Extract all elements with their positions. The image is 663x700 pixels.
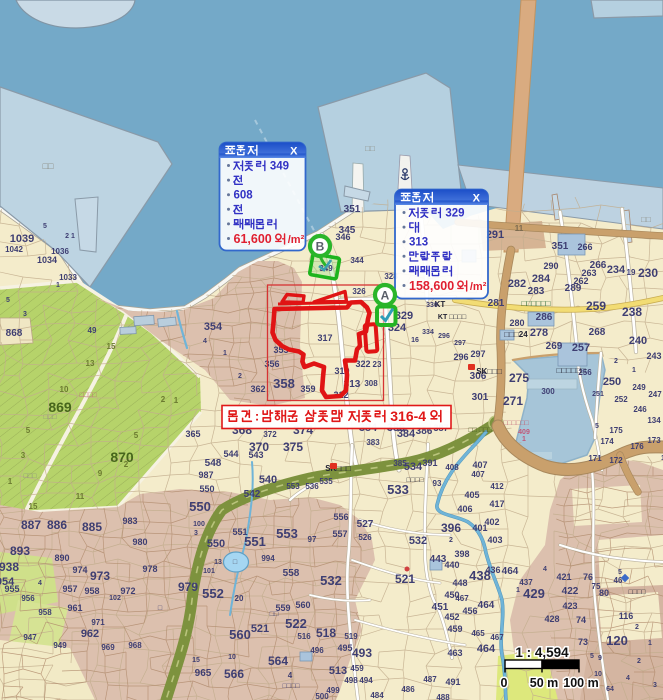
svg-text:2 1: 2 1 bbox=[65, 233, 75, 240]
svg-text:257: 257 bbox=[572, 342, 590, 354]
svg-text:566: 566 bbox=[224, 667, 244, 681]
svg-text:□□□: □□□ bbox=[24, 473, 37, 480]
svg-text:448: 448 bbox=[452, 578, 467, 588]
svg-text:297: 297 bbox=[470, 349, 485, 359]
svg-text:266: 266 bbox=[590, 260, 607, 271]
svg-text:281: 281 bbox=[488, 298, 505, 309]
svg-text:5: 5 bbox=[595, 423, 599, 430]
svg-text:230: 230 bbox=[638, 266, 658, 280]
svg-text:464: 464 bbox=[478, 600, 495, 611]
svg-text:351: 351 bbox=[344, 204, 361, 215]
svg-text:463: 463 bbox=[447, 648, 462, 658]
svg-text:A: A bbox=[381, 289, 390, 303]
svg-text:116: 116 bbox=[619, 611, 634, 621]
svg-text:396: 396 bbox=[441, 521, 461, 535]
svg-text:2: 2 bbox=[124, 460, 129, 469]
svg-text:440: 440 bbox=[444, 560, 459, 570]
svg-text:359: 359 bbox=[300, 384, 315, 394]
svg-text:102: 102 bbox=[109, 595, 121, 602]
svg-text:334: 334 bbox=[422, 329, 434, 336]
svg-text:2: 2 bbox=[238, 373, 242, 380]
svg-text:550: 550 bbox=[199, 484, 214, 494]
svg-text:938: 938 bbox=[0, 560, 19, 574]
svg-text::: : bbox=[255, 409, 259, 424]
svg-text:534: 534 bbox=[404, 461, 423, 473]
svg-text:134: 134 bbox=[647, 416, 661, 425]
svg-text:252: 252 bbox=[614, 395, 628, 404]
svg-text:351: 351 bbox=[552, 241, 569, 252]
svg-text:550: 550 bbox=[207, 538, 225, 550]
svg-text:246: 246 bbox=[633, 405, 647, 414]
svg-text:249: 249 bbox=[632, 383, 646, 392]
svg-text:243: 243 bbox=[646, 351, 661, 361]
svg-text:□□: □□ bbox=[43, 161, 54, 171]
svg-text:349: 349 bbox=[270, 161, 289, 173]
svg-text:286: 286 bbox=[536, 312, 553, 323]
svg-text:301: 301 bbox=[472, 392, 489, 403]
svg-text:487: 487 bbox=[423, 675, 437, 684]
svg-text:467: 467 bbox=[490, 633, 504, 642]
svg-text:558: 558 bbox=[283, 568, 300, 579]
svg-text:551: 551 bbox=[244, 534, 266, 549]
svg-text:540: 540 bbox=[259, 474, 277, 486]
svg-text:358: 358 bbox=[273, 376, 295, 391]
svg-text:544: 544 bbox=[223, 449, 238, 459]
svg-text:1039: 1039 bbox=[10, 233, 34, 245]
svg-text:532: 532 bbox=[409, 535, 427, 547]
svg-text:100: 100 bbox=[193, 521, 205, 528]
svg-text:947: 947 bbox=[23, 633, 37, 642]
svg-text:□□: □□ bbox=[270, 611, 279, 618]
svg-text:968: 968 bbox=[128, 641, 142, 650]
svg-text:495: 495 bbox=[337, 643, 352, 653]
svg-text:429: 429 bbox=[523, 586, 545, 601]
svg-text:496: 496 bbox=[310, 646, 324, 655]
svg-text:972: 972 bbox=[120, 586, 135, 596]
svg-text:1: 1 bbox=[648, 640, 652, 647]
svg-text:1: 1 bbox=[223, 350, 227, 357]
svg-text:437: 437 bbox=[519, 578, 533, 587]
svg-text:173: 173 bbox=[647, 436, 661, 445]
svg-text:974: 974 bbox=[72, 565, 87, 575]
svg-text:176: 176 bbox=[630, 442, 644, 451]
svg-text:521: 521 bbox=[251, 623, 269, 635]
svg-text:329: 329 bbox=[395, 310, 413, 322]
svg-text:15: 15 bbox=[107, 342, 116, 351]
svg-text:553: 553 bbox=[276, 526, 298, 541]
svg-text:403: 403 bbox=[487, 535, 502, 545]
svg-text:969: 969 bbox=[101, 643, 115, 652]
svg-text:120: 120 bbox=[606, 633, 628, 648]
svg-text:407: 407 bbox=[472, 460, 487, 470]
svg-text:533: 533 bbox=[387, 482, 409, 497]
svg-text:13: 13 bbox=[86, 359, 95, 368]
svg-text:464: 464 bbox=[502, 566, 519, 577]
svg-text:□□□□□□: □□□□□□ bbox=[503, 420, 529, 427]
svg-text:978: 978 bbox=[142, 564, 157, 574]
svg-text:356: 356 bbox=[264, 359, 279, 369]
svg-text:329: 329 bbox=[445, 208, 464, 220]
svg-text:521: 521 bbox=[395, 572, 415, 586]
svg-text:280: 280 bbox=[509, 318, 524, 328]
svg-text:965: 965 bbox=[195, 668, 212, 679]
svg-text:158,600: 158,600 bbox=[409, 279, 454, 293]
svg-text:4: 4 bbox=[543, 566, 547, 573]
svg-text:250: 250 bbox=[603, 376, 621, 388]
svg-text:465: 465 bbox=[471, 629, 485, 638]
svg-text:971: 971 bbox=[91, 618, 105, 627]
svg-text:459: 459 bbox=[350, 664, 364, 673]
svg-text:259: 259 bbox=[586, 299, 606, 313]
svg-text:3: 3 bbox=[23, 311, 27, 318]
svg-text:4: 4 bbox=[626, 675, 630, 682]
svg-text:300: 300 bbox=[541, 387, 555, 396]
svg-text:322: 322 bbox=[355, 359, 370, 369]
svg-text:330: 330 bbox=[426, 302, 438, 309]
svg-text:□□ □□□: □□ □□□ bbox=[468, 427, 492, 434]
svg-text:370: 370 bbox=[249, 440, 269, 454]
svg-text:405: 405 bbox=[464, 490, 479, 500]
svg-text:983: 983 bbox=[122, 516, 137, 526]
svg-text:870: 870 bbox=[110, 449, 134, 465]
svg-text:9: 9 bbox=[598, 655, 602, 662]
svg-text:KT □□□□: KT □□□□ bbox=[438, 314, 467, 321]
svg-text:553: 553 bbox=[286, 482, 300, 491]
svg-text:973: 973 bbox=[90, 569, 110, 583]
svg-text:354: 354 bbox=[204, 321, 223, 333]
svg-text:□□□□□□: □□□□□□ bbox=[522, 299, 551, 308]
svg-text:61,600: 61,600 bbox=[234, 232, 272, 246]
svg-text:456: 456 bbox=[462, 606, 477, 616]
svg-text:50 m: 50 m bbox=[530, 676, 559, 690]
svg-text:234: 234 bbox=[607, 264, 626, 276]
svg-text:890: 890 bbox=[54, 553, 69, 563]
svg-text:526: 526 bbox=[358, 533, 372, 542]
svg-text:987: 987 bbox=[198, 470, 213, 480]
svg-text:5: 5 bbox=[26, 426, 31, 435]
svg-text:417: 417 bbox=[489, 499, 504, 509]
svg-text:548: 548 bbox=[205, 458, 222, 469]
svg-text:73: 73 bbox=[578, 637, 588, 647]
svg-text:80: 80 bbox=[599, 588, 609, 598]
svg-text:869: 869 bbox=[48, 399, 72, 415]
svg-text:247: 247 bbox=[648, 390, 662, 399]
svg-text:979: 979 bbox=[178, 580, 198, 594]
svg-text:□□: □□ bbox=[365, 144, 375, 153]
svg-text:527: 527 bbox=[357, 519, 374, 530]
svg-text:887: 887 bbox=[21, 518, 41, 532]
svg-text:344: 344 bbox=[350, 256, 364, 265]
svg-text:958: 958 bbox=[84, 586, 99, 596]
svg-text:□□□□□□: □□□□□□ bbox=[557, 366, 586, 375]
svg-text:100 m: 100 m bbox=[563, 676, 598, 690]
svg-text:2: 2 bbox=[614, 358, 618, 365]
svg-text:423: 423 bbox=[562, 601, 577, 611]
svg-text:498: 498 bbox=[344, 676, 358, 685]
svg-text:X: X bbox=[290, 146, 298, 158]
svg-text:893: 893 bbox=[10, 544, 30, 558]
svg-text:564: 564 bbox=[268, 654, 288, 668]
svg-text:275: 275 bbox=[509, 371, 529, 385]
svg-text:11: 11 bbox=[76, 492, 85, 501]
svg-text:536: 536 bbox=[305, 482, 319, 491]
svg-text:949: 949 bbox=[53, 641, 67, 650]
svg-text:484: 484 bbox=[370, 691, 384, 700]
svg-text:958: 958 bbox=[38, 608, 52, 617]
svg-text:SK□□□: SK□□□ bbox=[476, 367, 502, 376]
svg-text:171: 171 bbox=[588, 454, 602, 463]
svg-text:1: 1 bbox=[632, 367, 636, 374]
svg-text:436: 436 bbox=[485, 565, 500, 575]
svg-text:407: 407 bbox=[471, 470, 485, 479]
svg-text:428: 428 bbox=[544, 614, 559, 624]
svg-text:/m²: /m² bbox=[288, 234, 305, 246]
svg-text:535: 535 bbox=[319, 477, 333, 486]
svg-text:398: 398 bbox=[454, 549, 469, 559]
svg-text:11: 11 bbox=[515, 224, 524, 233]
svg-text:296: 296 bbox=[453, 352, 468, 362]
svg-text:522: 522 bbox=[285, 616, 307, 631]
svg-text:76: 76 bbox=[583, 572, 593, 582]
svg-text:266: 266 bbox=[577, 242, 592, 252]
svg-text:516: 516 bbox=[297, 632, 311, 641]
svg-text:384: 384 bbox=[397, 428, 416, 440]
svg-text:1: 1 bbox=[56, 282, 60, 289]
svg-text:251: 251 bbox=[592, 391, 604, 398]
svg-text:3: 3 bbox=[194, 530, 198, 537]
svg-text:3: 3 bbox=[653, 682, 657, 689]
svg-text:372: 372 bbox=[263, 430, 277, 439]
svg-text:4: 4 bbox=[288, 671, 293, 680]
svg-text:608: 608 bbox=[234, 190, 254, 202]
svg-text:500: 500 bbox=[315, 692, 329, 700]
svg-text:1: 1 bbox=[516, 587, 520, 594]
svg-text:75: 75 bbox=[592, 582, 601, 591]
svg-text:X: X bbox=[473, 193, 481, 205]
svg-text:B: B bbox=[316, 240, 325, 254]
svg-text:49: 49 bbox=[88, 326, 97, 335]
svg-text:278: 278 bbox=[530, 327, 548, 339]
svg-text:488: 488 bbox=[436, 693, 450, 700]
svg-text:980: 980 bbox=[132, 537, 147, 547]
svg-text:271: 271 bbox=[503, 394, 523, 408]
svg-text:532: 532 bbox=[320, 573, 342, 588]
svg-text:961: 961 bbox=[67, 603, 82, 613]
svg-text:956: 956 bbox=[21, 594, 35, 603]
svg-text:4: 4 bbox=[203, 338, 207, 345]
svg-text:240: 240 bbox=[629, 335, 647, 347]
svg-text:4: 4 bbox=[38, 580, 42, 587]
svg-text:493: 493 bbox=[352, 646, 372, 660]
svg-text:5: 5 bbox=[590, 653, 594, 660]
svg-text:290: 290 bbox=[543, 261, 558, 271]
svg-text:93: 93 bbox=[433, 479, 442, 488]
svg-text:994: 994 bbox=[261, 554, 275, 563]
svg-text:5: 5 bbox=[6, 297, 10, 304]
svg-text:962: 962 bbox=[81, 628, 99, 640]
svg-text:□□□□: □□□□ bbox=[629, 589, 647, 596]
svg-text:885: 885 bbox=[82, 520, 102, 534]
svg-text:868: 868 bbox=[6, 328, 23, 339]
svg-text:317: 317 bbox=[317, 333, 332, 343]
svg-text:1033: 1033 bbox=[59, 273, 77, 282]
svg-text:408: 408 bbox=[445, 463, 459, 472]
svg-text:9: 9 bbox=[98, 469, 103, 478]
svg-text:459: 459 bbox=[447, 624, 462, 634]
svg-text:15: 15 bbox=[192, 657, 200, 664]
svg-text:316-4: 316-4 bbox=[390, 408, 426, 424]
svg-text:5: 5 bbox=[618, 569, 622, 576]
svg-text:957: 957 bbox=[62, 584, 77, 594]
svg-text:518: 518 bbox=[316, 626, 336, 640]
svg-text:15: 15 bbox=[29, 502, 38, 511]
svg-text:2: 2 bbox=[161, 395, 166, 404]
svg-text:174: 174 bbox=[600, 437, 614, 446]
svg-text:375: 375 bbox=[283, 440, 303, 454]
svg-text:284: 284 bbox=[532, 273, 551, 285]
svg-text:494: 494 bbox=[359, 676, 373, 685]
svg-text:13: 13 bbox=[214, 559, 222, 566]
svg-text:1034: 1034 bbox=[37, 255, 57, 265]
svg-text:172: 172 bbox=[609, 456, 623, 465]
svg-text:19: 19 bbox=[627, 268, 636, 277]
svg-text:2: 2 bbox=[637, 658, 641, 665]
svg-text:560: 560 bbox=[295, 600, 310, 610]
svg-text:SK□□□: SK□□□ bbox=[325, 464, 351, 473]
svg-text:1: 1 bbox=[8, 477, 13, 486]
svg-text:10: 10 bbox=[228, 654, 236, 661]
svg-text:452: 452 bbox=[444, 612, 459, 622]
svg-text:557: 557 bbox=[332, 529, 347, 539]
svg-text:16: 16 bbox=[411, 337, 419, 344]
svg-text:/m²: /m² bbox=[470, 281, 487, 293]
svg-text:64: 64 bbox=[606, 686, 614, 693]
svg-text:552: 552 bbox=[202, 586, 224, 601]
svg-text:1: 1 bbox=[174, 396, 179, 405]
svg-text:954: 954 bbox=[0, 576, 15, 588]
svg-text:362: 362 bbox=[250, 384, 265, 394]
svg-text:556: 556 bbox=[333, 512, 348, 522]
svg-text:□□□□: □□□□ bbox=[283, 683, 301, 690]
svg-text:282: 282 bbox=[508, 278, 526, 290]
svg-text:409: 409 bbox=[518, 429, 530, 436]
svg-text:268: 268 bbox=[589, 327, 606, 338]
svg-text:175: 175 bbox=[609, 426, 623, 435]
svg-text:1 : 4,594: 1 : 4,594 bbox=[515, 645, 569, 660]
svg-text:886: 886 bbox=[47, 518, 67, 532]
svg-text:2: 2 bbox=[449, 537, 453, 544]
svg-text:346: 346 bbox=[335, 232, 350, 242]
svg-text:97: 97 bbox=[308, 535, 317, 544]
svg-text:238: 238 bbox=[622, 305, 642, 319]
svg-text:365: 365 bbox=[185, 429, 200, 439]
svg-text:1: 1 bbox=[522, 436, 526, 443]
svg-text:464: 464 bbox=[477, 643, 496, 655]
svg-text:313: 313 bbox=[409, 237, 428, 249]
svg-text:296: 296 bbox=[438, 333, 450, 340]
svg-text:□□□24: □□□24 bbox=[504, 330, 528, 339]
svg-text:□□: □□ bbox=[641, 215, 651, 224]
svg-text:□□□: □□□ bbox=[44, 414, 57, 421]
svg-text:491: 491 bbox=[445, 677, 460, 687]
svg-text:10: 10 bbox=[60, 385, 69, 394]
svg-text:402: 402 bbox=[484, 517, 499, 527]
svg-text:542: 542 bbox=[244, 489, 261, 500]
svg-text:1042: 1042 bbox=[5, 245, 23, 254]
svg-text:383: 383 bbox=[366, 438, 380, 447]
svg-text:422: 422 bbox=[562, 586, 579, 597]
svg-text:101: 101 bbox=[203, 568, 215, 575]
svg-text:20: 20 bbox=[235, 594, 244, 603]
svg-text:283: 283 bbox=[528, 286, 545, 297]
svg-text:550: 550 bbox=[189, 499, 211, 514]
svg-text:412: 412 bbox=[490, 482, 504, 491]
svg-text:385: 385 bbox=[393, 459, 407, 468]
svg-text:0: 0 bbox=[501, 676, 508, 690]
svg-text:391: 391 bbox=[422, 458, 437, 468]
svg-text:□□□□: □□□□ bbox=[80, 392, 98, 399]
svg-text:519: 519 bbox=[344, 632, 358, 641]
svg-text:486: 486 bbox=[401, 685, 415, 694]
svg-text:467: 467 bbox=[455, 594, 469, 603]
svg-text:326: 326 bbox=[352, 287, 366, 296]
svg-text:421: 421 bbox=[556, 572, 571, 582]
svg-text:□□□□: □□□□ bbox=[407, 477, 425, 484]
svg-text:74: 74 bbox=[576, 615, 586, 625]
svg-text:3: 3 bbox=[21, 451, 26, 460]
svg-text:406: 406 bbox=[457, 504, 472, 514]
svg-text:2: 2 bbox=[635, 624, 639, 631]
svg-text:269: 269 bbox=[546, 341, 563, 352]
svg-text:23: 23 bbox=[373, 360, 382, 369]
svg-text:308: 308 bbox=[364, 379, 378, 388]
svg-text:5: 5 bbox=[43, 223, 47, 230]
svg-text:560: 560 bbox=[229, 627, 251, 642]
svg-text:5: 5 bbox=[134, 431, 139, 440]
svg-text:297: 297 bbox=[454, 340, 466, 347]
